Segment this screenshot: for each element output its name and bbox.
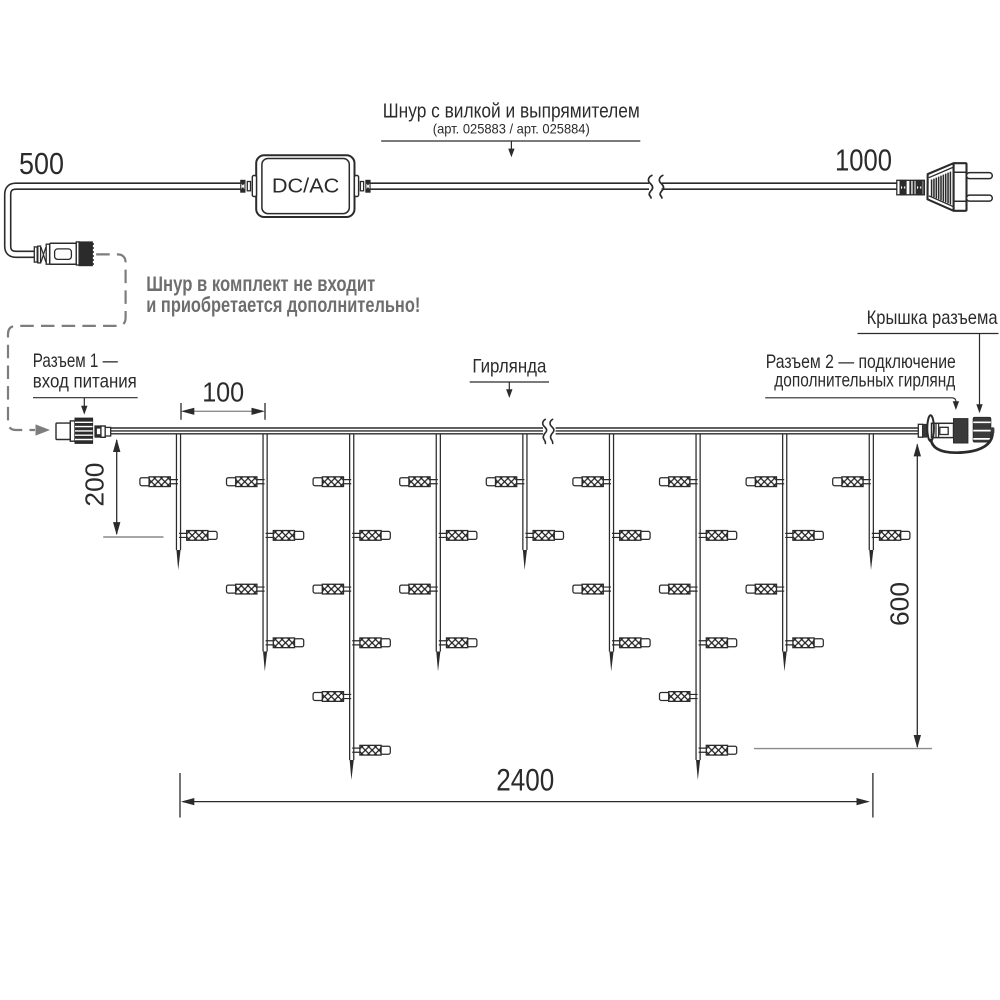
svg-text:(арт. 025883 / арт. 025884): (арт. 025883 / арт. 025884) [433, 120, 590, 136]
svg-text:1000: 1000 [835, 142, 892, 177]
svg-text:Крышка разъема: Крышка разъема [867, 307, 998, 329]
svg-text:600: 600 [884, 582, 914, 626]
svg-text:200: 200 [80, 463, 110, 507]
svg-text:2400: 2400 [496, 762, 554, 798]
svg-text:DC/AC: DC/AC [272, 176, 340, 198]
svg-text:Шнур с вилкой и выпрямителем: Шнур с вилкой и выпрямителем [383, 100, 640, 122]
svg-text:Гирлянда: Гирлянда [472, 356, 546, 378]
svg-text:Шнур в комплект не входит: Шнур в комплект не входит [146, 273, 375, 296]
svg-text:вход питания: вход питания [33, 370, 137, 392]
svg-text:дополнительных гирлянд: дополнительных гирлянд [774, 369, 955, 391]
svg-text:Разъем 1 —: Разъем 1 — [33, 350, 118, 372]
svg-text:и приобретается дополнительно!: и приобретается дополнительно! [146, 294, 420, 317]
svg-text:100: 100 [202, 376, 244, 407]
svg-text:500: 500 [19, 146, 64, 181]
